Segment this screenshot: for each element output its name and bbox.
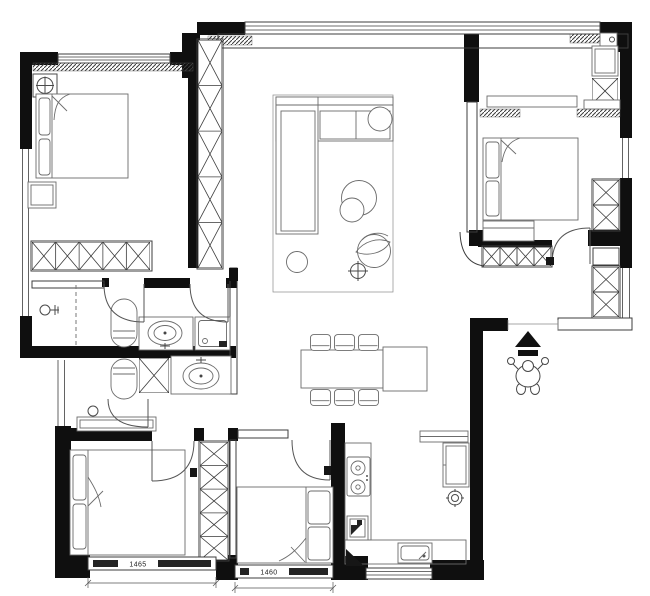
wall-right-upper — [620, 22, 632, 138]
window-kitchen-bottom — [366, 568, 432, 579]
curtain-hatch-bedroom1 — [33, 63, 193, 71]
floor-plan-canvas: 1465 1460 — [0, 0, 650, 596]
wall-bath-jamb-left — [102, 278, 109, 287]
dining-chair — [311, 335, 331, 351]
closet-top-right — [584, 33, 620, 109]
dining-chair — [359, 390, 379, 406]
door-jamb — [324, 466, 331, 475]
bed-double — [36, 94, 128, 178]
shelf — [584, 100, 620, 109]
cabinet-x-box — [103, 242, 127, 270]
headboard-shelf — [487, 96, 577, 107]
door-bath-upper-right — [190, 284, 228, 322]
door-bedroom-top-right — [546, 228, 590, 265]
ottoman — [287, 252, 308, 273]
drain-dot — [164, 332, 167, 335]
person-figure-icon — [508, 358, 549, 395]
bay-window-sill — [218, 34, 628, 48]
dining-chair — [335, 335, 355, 351]
wall-bedroom2-pier — [464, 33, 479, 102]
pillow — [39, 98, 50, 135]
wall-left-lower — [55, 426, 71, 558]
wall-jamb-bedroom4 — [194, 428, 204, 441]
cabinet-x-box — [593, 205, 619, 230]
wall-bath-door-pier — [144, 278, 190, 288]
window-left-wall — [20, 144, 32, 321]
pillow — [486, 181, 499, 216]
pillow — [73, 504, 86, 549]
toilet-icon — [111, 359, 137, 399]
window-right-wall — [623, 138, 629, 178]
bench — [483, 221, 534, 241]
cabinet-x-box — [200, 489, 228, 513]
cabinet-x-box — [198, 222, 222, 268]
dining-chair — [335, 390, 355, 406]
dimension-label-middle: 1460 — [260, 570, 277, 577]
shoe-cabinet-column-lower — [592, 266, 620, 318]
cabinet-x-box — [198, 86, 222, 132]
cabinet-x-box — [500, 247, 517, 266]
pillow — [73, 455, 86, 500]
room-bedroom-bottom-middle — [230, 430, 333, 563]
pillow — [308, 491, 330, 524]
door-jamb — [546, 257, 554, 265]
cabinet-x-box — [593, 267, 619, 292]
dining-table — [301, 350, 383, 388]
small-appliance-icon — [347, 516, 368, 540]
wardrobe-x-row — [31, 241, 152, 271]
plant-icon — [356, 233, 391, 267]
wall-bedroom3-left — [230, 440, 236, 558]
closet-column-living — [197, 39, 223, 269]
dining-area — [301, 335, 427, 406]
pillow — [486, 142, 499, 178]
pillow — [39, 139, 50, 175]
cabinet-x-box — [200, 442, 228, 466]
window-bedroom1-top — [58, 54, 170, 63]
cabinet-x-box — [56, 242, 80, 270]
wall-bedroom3-top — [238, 430, 288, 438]
wardrobe-x-row — [482, 246, 552, 267]
cabinet-x-box — [517, 247, 534, 266]
room-bedroom-top-left — [28, 74, 152, 271]
cabinet-x-box — [198, 131, 222, 177]
door-jamb — [190, 468, 197, 477]
entry-arrow-icon — [515, 331, 541, 356]
room-living — [273, 95, 393, 292]
wall-bedroom2-left-thin — [467, 102, 477, 232]
window-1465: 1465 — [85, 557, 219, 588]
wall-left-upper — [20, 52, 32, 148]
bed-double — [483, 138, 578, 220]
dimension-label-left: 1465 — [129, 562, 146, 569]
washer-mark — [219, 341, 227, 347]
toilet-icon — [111, 299, 137, 347]
wardrobe-x-column — [199, 441, 229, 561]
wall-kitchen-right — [470, 330, 483, 570]
cabinet-x-box — [126, 242, 150, 270]
room-kitchen — [345, 431, 469, 566]
window-1460: 1460 — [232, 565, 336, 593]
cabinet-x-box — [593, 292, 619, 317]
cabinet-x-box — [32, 242, 56, 270]
bathroom-lower — [77, 356, 231, 431]
cabinet-x-box — [200, 513, 228, 537]
vanity-sink — [139, 317, 193, 350]
fridge-icon — [443, 443, 469, 487]
wall-bottom-left-corner — [55, 553, 90, 578]
shower-head-icon — [40, 305, 59, 315]
cabinet-x-box — [79, 242, 103, 270]
wall-hall-cap — [229, 268, 238, 281]
cabinet-x-box — [200, 466, 228, 490]
cabinet-x-box — [593, 180, 619, 205]
sofa-l-shaped — [276, 97, 393, 234]
wall-entry-stub — [470, 318, 508, 331]
wall-jamb-bedroom3 — [228, 428, 238, 441]
pillow — [308, 527, 330, 560]
door-bedroom-bottom-middle — [292, 440, 331, 480]
floor-drain-icon — [446, 489, 464, 507]
dining-chair — [311, 390, 331, 406]
curtain-hatch-bedroom2-left — [480, 109, 520, 117]
wall-bottom-right-corner — [430, 560, 484, 580]
sideboard — [383, 347, 427, 391]
shelf — [593, 248, 619, 265]
drain-dot — [200, 375, 203, 378]
cabinet-x-box — [198, 177, 222, 223]
cabinet-x-box — [200, 536, 228, 560]
wall-column-divider — [588, 230, 622, 246]
bed-double — [237, 487, 333, 563]
kitchen-sink-icon — [398, 543, 432, 563]
floor-plan: 1465 1460 — [0, 0, 650, 596]
cabinet-x-box — [483, 247, 500, 266]
cabinet-x-box — [139, 358, 169, 393]
gas-hob-icon — [347, 457, 370, 496]
window-living-top — [218, 22, 628, 48]
entry-threshold — [508, 320, 558, 330]
bed-double — [70, 450, 185, 555]
wall-bath-top — [32, 281, 104, 288]
entry-step-wall — [558, 318, 632, 330]
nightstand — [28, 182, 56, 208]
curtain-hatch-bedroom2-right — [577, 109, 620, 117]
dining-chair — [359, 335, 379, 351]
wall-living-top-left — [197, 22, 245, 35]
pouf-small — [340, 198, 364, 222]
window-left-lower — [58, 360, 65, 426]
round-side-table — [368, 107, 392, 131]
cabinet — [592, 46, 618, 76]
cabinet-x-box — [198, 40, 222, 86]
wall-right-mid — [620, 178, 632, 268]
vanity-sink — [171, 356, 231, 394]
room-bedroom-bottom-left — [70, 441, 229, 561]
shoe-cabinet-column-upper — [592, 179, 620, 231]
